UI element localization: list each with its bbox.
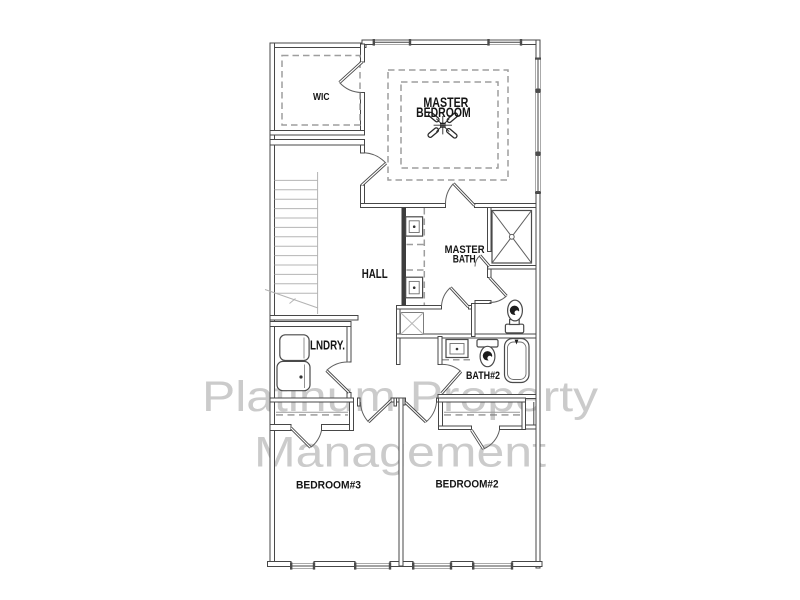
svg-text:BATH: BATH [453, 254, 476, 266]
svg-text:BEDROOM: BEDROOM [416, 104, 471, 120]
svg-text:LNDRY.: LNDRY. [310, 339, 345, 353]
svg-text:BEDROOM#2: BEDROOM#2 [436, 479, 499, 491]
svg-text:HALL: HALL [362, 267, 388, 281]
svg-text:BEDROOM#3: BEDROOM#3 [296, 480, 361, 492]
svg-text:BATH#2: BATH#2 [466, 370, 500, 382]
svg-text:WIC: WIC [313, 92, 330, 103]
